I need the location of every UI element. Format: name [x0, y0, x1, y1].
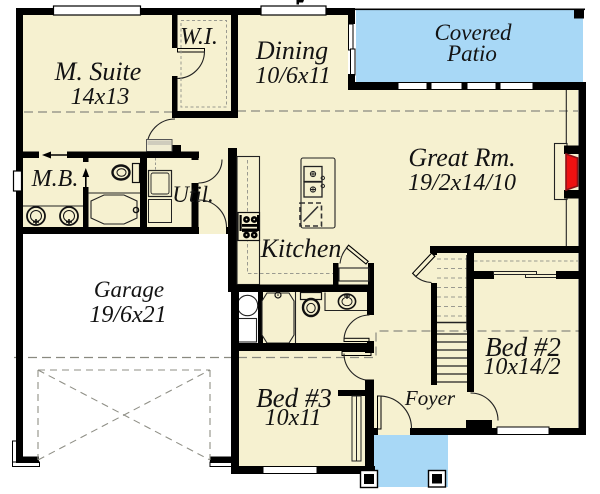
- svg-text:19/2x14/10: 19/2x14/10: [408, 170, 516, 196]
- svg-text:Patio: Patio: [446, 41, 497, 66]
- svg-text:Great Rm.: Great Rm.: [408, 143, 515, 172]
- svg-text:Util.: Util.: [172, 182, 214, 207]
- svg-text:19/6x21: 19/6x21: [89, 302, 166, 328]
- svg-text:Foyer: Foyer: [404, 386, 456, 410]
- svg-text:10/6x11: 10/6x11: [255, 63, 331, 89]
- svg-text:M. Suite: M. Suite: [54, 57, 142, 86]
- svg-text:Dining: Dining: [255, 36, 328, 65]
- svg-text:M.B.: M.B.: [31, 166, 79, 192]
- svg-text:W.I.: W.I.: [180, 24, 218, 50]
- svg-text:10x14/2: 10x14/2: [483, 354, 560, 380]
- svg-text:14x13: 14x13: [71, 84, 130, 110]
- svg-text:10x11: 10x11: [265, 405, 322, 431]
- svg-text:Garage: Garage: [94, 277, 164, 302]
- svg-text:Kitchen: Kitchen: [260, 234, 342, 263]
